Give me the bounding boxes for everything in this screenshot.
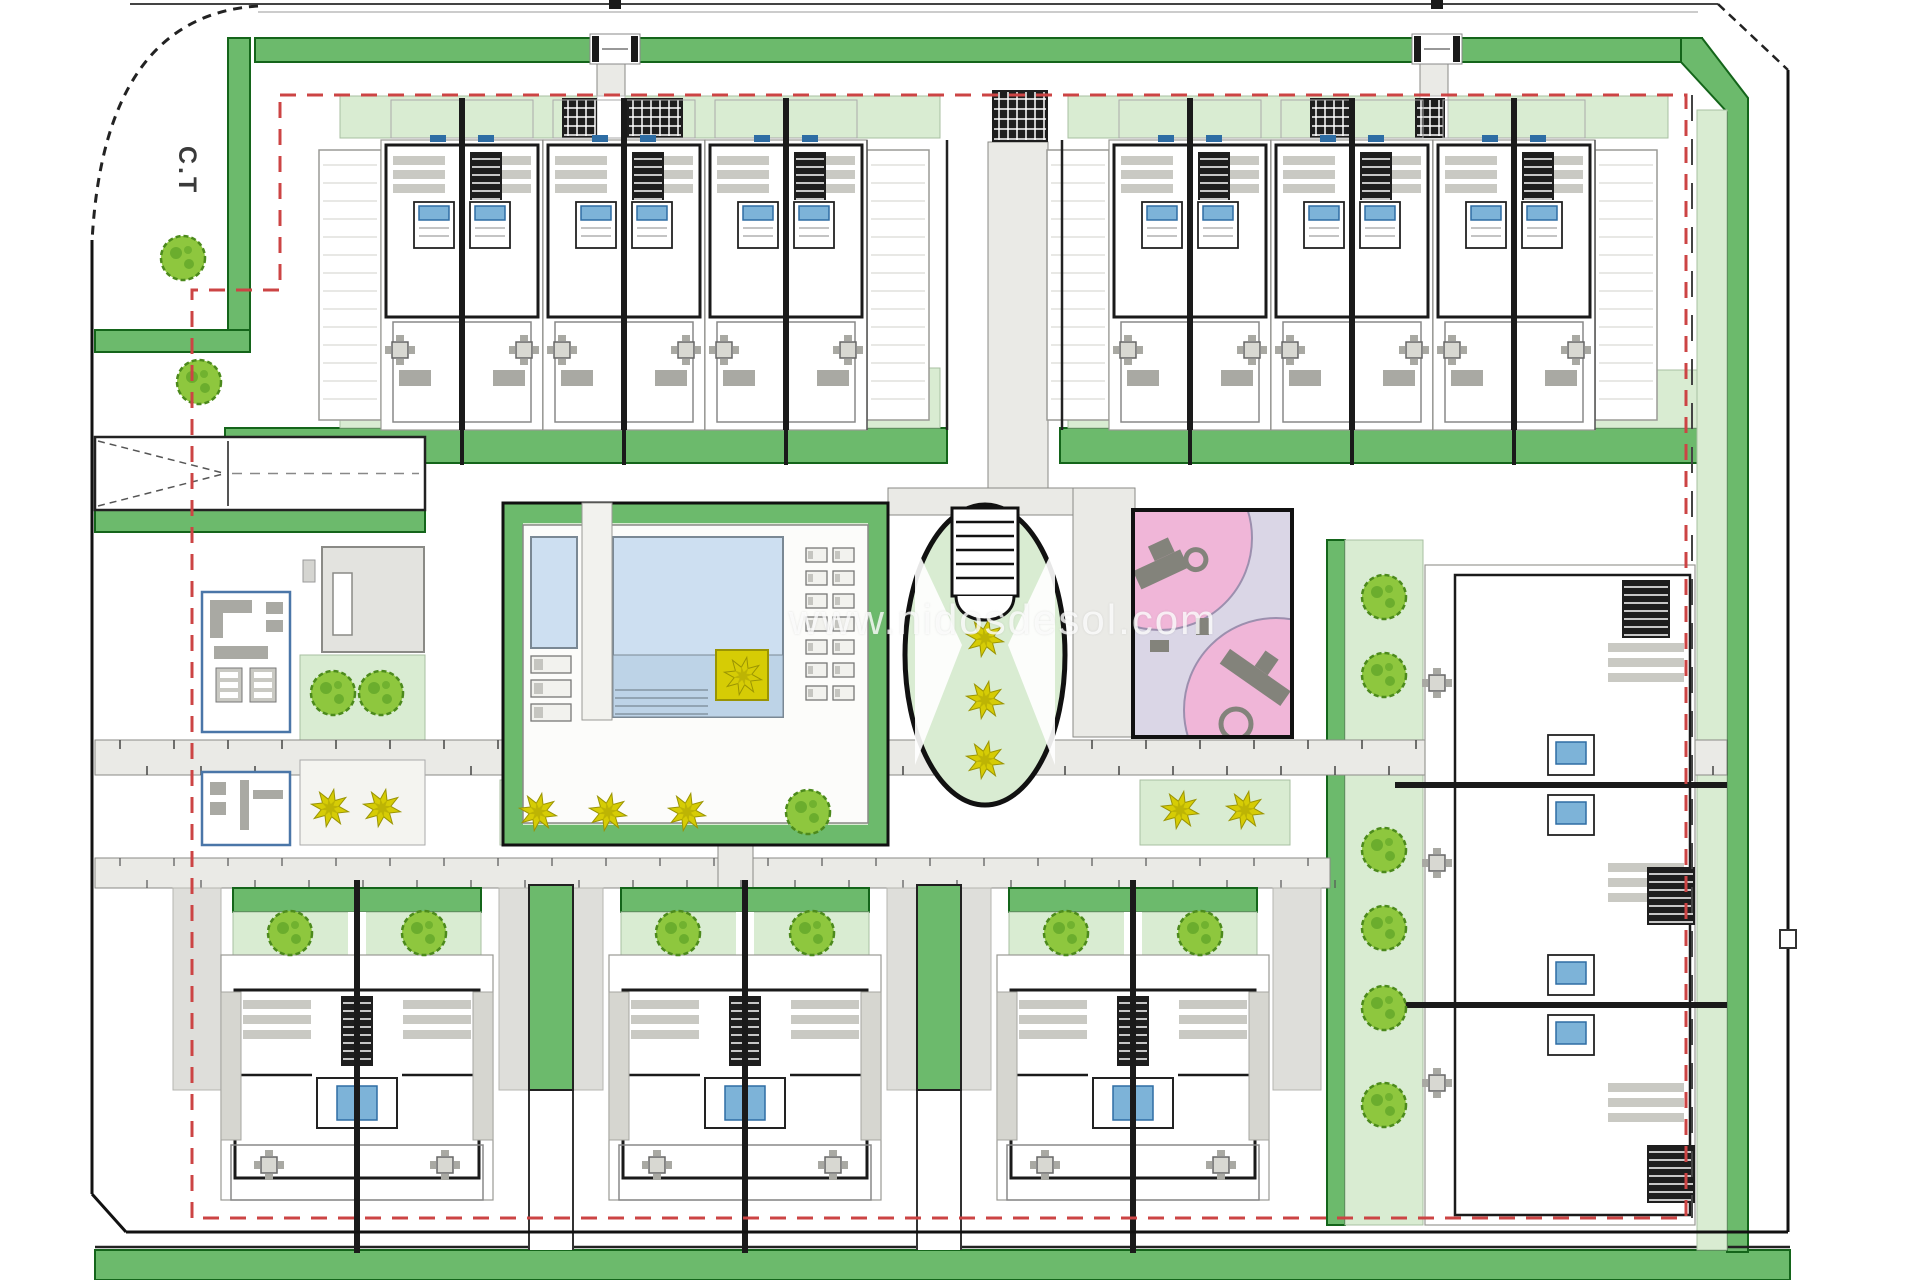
- site-plan: C.T www.nidosdesol.com: [0, 0, 1920, 1280]
- tree: [1362, 575, 1406, 619]
- tree: [177, 360, 221, 404]
- tree: [402, 911, 446, 955]
- tree: [268, 911, 312, 955]
- pool-complex: [503, 503, 888, 845]
- tree: [1044, 911, 1088, 955]
- tree: [1362, 1083, 1406, 1127]
- site-plan-drawing: [0, 0, 1920, 1280]
- tree: [1178, 911, 1222, 955]
- tree: [656, 911, 700, 955]
- tree: [786, 790, 830, 834]
- tree: [790, 911, 834, 955]
- tree: [1362, 906, 1406, 950]
- office-area: [95, 437, 425, 845]
- corner-label: C.T: [172, 146, 201, 195]
- bottom-residential-blocks: [221, 880, 1269, 1253]
- tree: [359, 671, 403, 715]
- tree: [1362, 828, 1406, 872]
- tree: [311, 671, 355, 715]
- tree: [161, 236, 205, 280]
- tree: [1362, 653, 1406, 697]
- right-residential-block: [1395, 565, 1727, 1225]
- tree: [1362, 986, 1406, 1030]
